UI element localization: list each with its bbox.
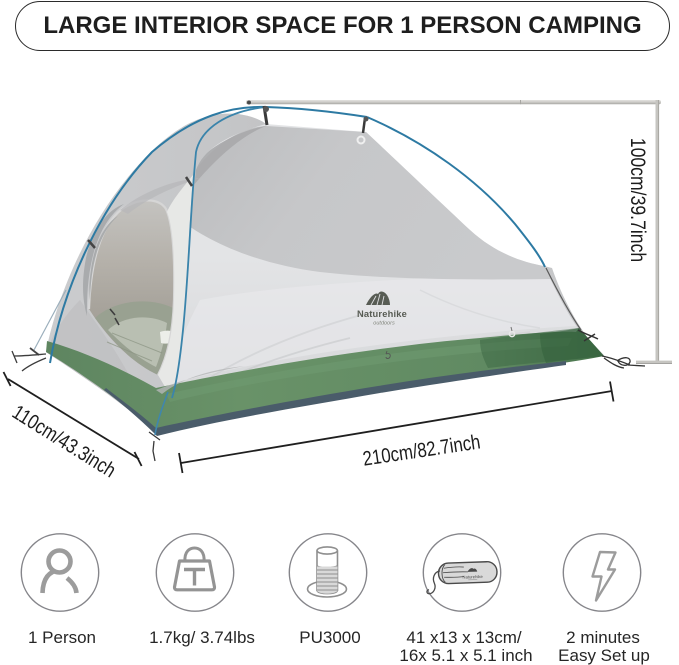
svg-text:210cm/82.7inch: 210cm/82.7inch xyxy=(361,430,482,470)
svg-text:2 minutes: 2 minutes xyxy=(566,628,640,647)
svg-text:1.7kg/ 3.74lbs: 1.7kg/ 3.74lbs xyxy=(149,628,255,647)
svg-text:outdoors: outdoors xyxy=(373,321,395,327)
svg-text:PU3000: PU3000 xyxy=(299,628,360,647)
svg-text:100cm/39.7inch: 100cm/39.7inch xyxy=(626,138,650,262)
svg-text:Easy Set up: Easy Set up xyxy=(558,646,650,665)
svg-text:16x 5.1 x 5.1 inch: 16x 5.1 x 5.1 inch xyxy=(399,646,532,665)
svg-text:41 x13 x 13cm/: 41 x13 x 13cm/ xyxy=(406,628,522,647)
svg-text:Naturehike: Naturehike xyxy=(462,574,483,580)
svg-text:1 Person: 1 Person xyxy=(28,628,96,647)
svg-text:Naturehike: Naturehike xyxy=(357,309,407,319)
